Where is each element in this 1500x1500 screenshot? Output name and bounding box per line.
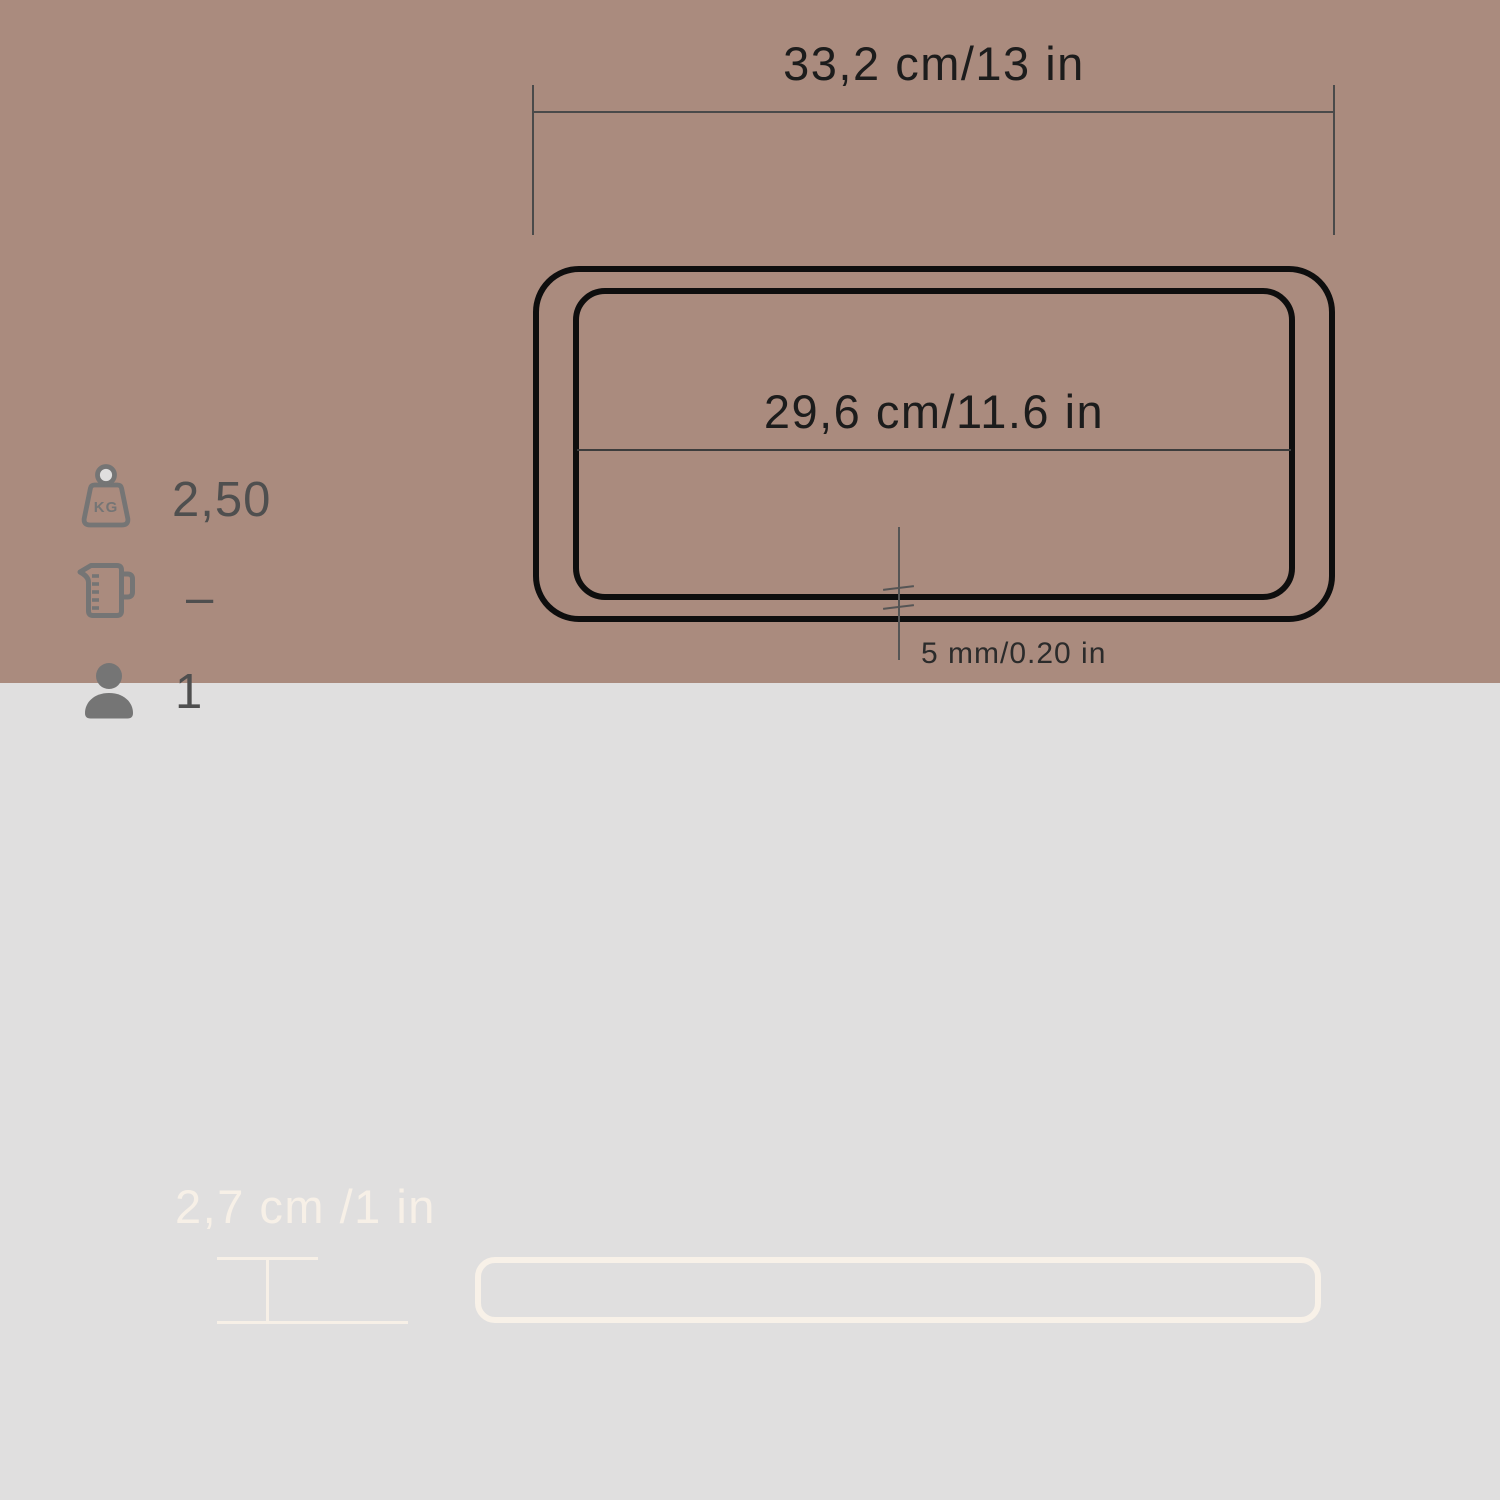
edge-thickness-measure-line bbox=[898, 527, 900, 660]
measuring-jug-icon bbox=[74, 560, 140, 622]
edge-thickness-label: 5 mm/0.20 in bbox=[921, 637, 1106, 671]
height-measure-bottom-line bbox=[217, 1321, 408, 1324]
dimension-tick-left bbox=[532, 85, 534, 235]
overall-width-dimension-line bbox=[533, 111, 1335, 113]
tray-side-view-outline bbox=[475, 1257, 1321, 1323]
kg-icon-text: KG bbox=[94, 499, 119, 516]
weight-kg-icon: KG bbox=[76, 462, 136, 530]
height-measure-vertical-line bbox=[266, 1257, 269, 1324]
dimension-tick-right bbox=[1333, 85, 1335, 235]
tray-inner-outline bbox=[573, 288, 1295, 600]
persons-value: 1 bbox=[175, 664, 203, 720]
inner-width-line bbox=[577, 449, 1291, 451]
overall-width-label: 33,2 cm/13 in bbox=[533, 36, 1335, 91]
person-icon bbox=[78, 660, 138, 720]
inner-width-label: 29,6 cm/11.6 in bbox=[573, 384, 1295, 439]
volume-value: – bbox=[186, 570, 214, 626]
side-height-label: 2,7 cm /1 in bbox=[175, 1179, 436, 1234]
product-dimensions-infographic: 33,2 cm/13 in 29,6 cm/11.6 in 5 mm/0.20 … bbox=[0, 0, 1500, 1500]
weight-value: 2,50 bbox=[172, 472, 271, 528]
